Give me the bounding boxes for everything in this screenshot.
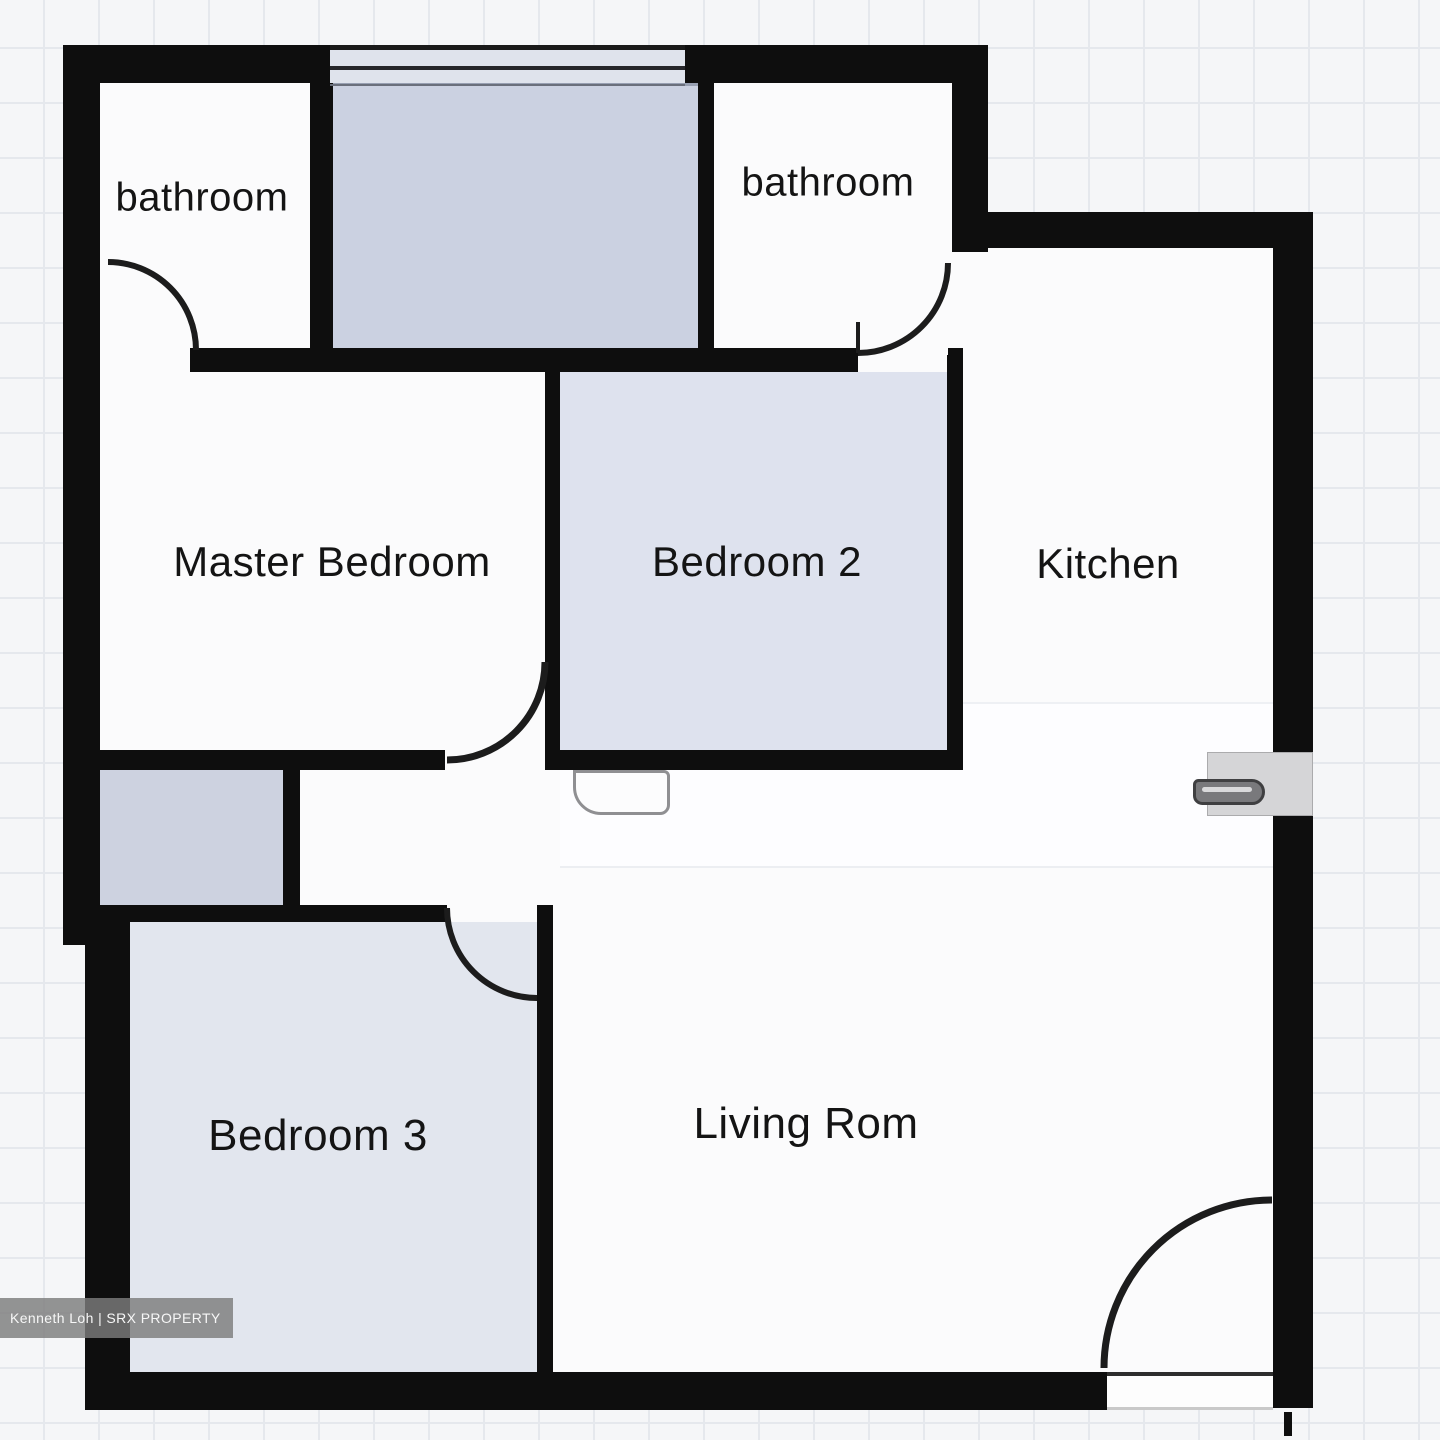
door-arc-entry — [1104, 1200, 1272, 1368]
door-handle-icon — [1193, 779, 1265, 805]
door-arc-bathroom2 — [858, 263, 948, 353]
door-arc-master-bedroom — [447, 662, 545, 760]
door-arc-bathroom1 — [108, 262, 196, 350]
room-label-living-room: Living Rom — [693, 1099, 918, 1149]
room-label-bathroom-2: bathroom — [742, 161, 915, 206]
room-label-master-bedroom: Master Bedroom — [173, 538, 490, 586]
door-arc-bedroom3 — [447, 908, 537, 998]
door-leaf-panel — [573, 770, 670, 815]
room-label-bedroom-2: Bedroom 2 — [652, 538, 862, 586]
floor-plan: bathroom bathroom Master Bedroom Bedroom… — [0, 0, 1440, 1440]
watermark-badge: Kenneth Loh | SRX PROPERTY — [0, 1298, 233, 1338]
room-label-kitchen: Kitchen — [1036, 540, 1180, 588]
room-label-bathroom-1: bathroom — [116, 176, 289, 221]
room-label-bedroom-3: Bedroom 3 — [208, 1111, 428, 1161]
